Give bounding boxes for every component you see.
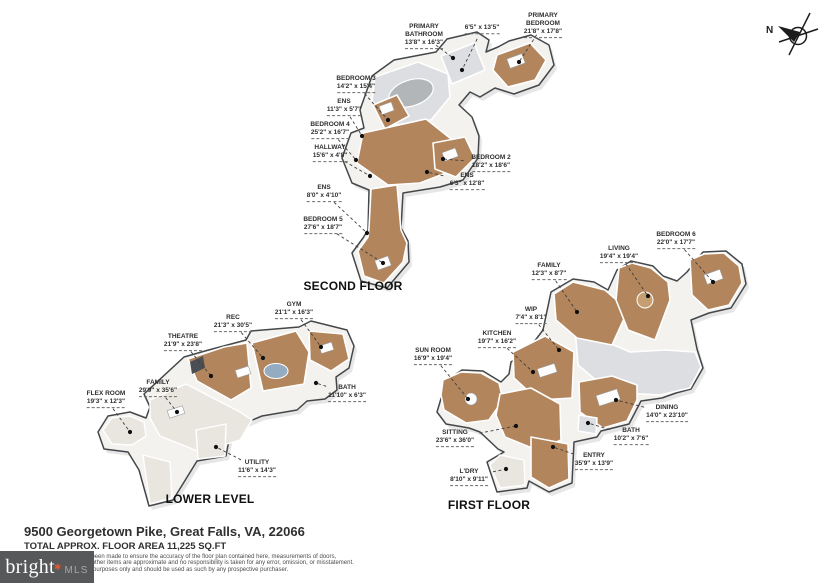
first-floor-plan [437, 251, 749, 496]
bright-mls-logo: bright✱MLS [0, 551, 94, 583]
utility-floor [196, 424, 226, 459]
room-dot [531, 370, 535, 374]
room-dot [517, 60, 521, 64]
room-dot [386, 118, 390, 122]
room-dot [646, 294, 650, 298]
room-dot [368, 174, 372, 178]
room-dot [557, 348, 561, 352]
room-dot [460, 68, 464, 72]
compass-icon: N [766, 13, 818, 55]
property-address: 9500 Georgetown Pike, Great Falls, VA, 2… [24, 524, 354, 539]
room-dot [551, 445, 555, 449]
room-dot [586, 421, 590, 425]
room-dot [319, 345, 323, 349]
second-floor-plan [342, 32, 557, 292]
room-dot [261, 356, 265, 360]
room-dot [175, 410, 179, 414]
compass-label: N [766, 25, 773, 36]
rec-rug [264, 364, 288, 379]
room-dot [451, 56, 455, 60]
entry-floor [531, 437, 569, 488]
room-dot [575, 310, 579, 314]
room-dot [425, 170, 429, 174]
living-rug [637, 292, 653, 308]
logo-mls-text: MLS [64, 565, 88, 576]
room-dot [314, 381, 318, 385]
room-dot [441, 157, 445, 161]
leader-line [334, 202, 367, 233]
room-dot [504, 467, 508, 471]
room-dot [614, 398, 618, 402]
room-dot [209, 374, 213, 378]
lower-level-plan [98, 321, 357, 510]
rec-floor [252, 331, 309, 391]
logo-asterisk-icon: ✱ [54, 562, 62, 573]
floor-plan-drawing: N [0, 0, 825, 583]
room-dot [381, 261, 385, 265]
room-dot [514, 424, 518, 428]
room-dot [128, 430, 132, 434]
room-dot [365, 231, 369, 235]
room-dot [466, 397, 470, 401]
room-dot [214, 445, 218, 449]
room-dot [360, 134, 364, 138]
room-dot [711, 280, 715, 284]
flex-room-floor [103, 416, 146, 445]
floor-plan-page: N SECOND FLOOR PRIMARY BATHROOM 13'8" x … [0, 0, 825, 583]
logo-brand-text: bright [5, 556, 55, 579]
room-dot [354, 158, 358, 162]
